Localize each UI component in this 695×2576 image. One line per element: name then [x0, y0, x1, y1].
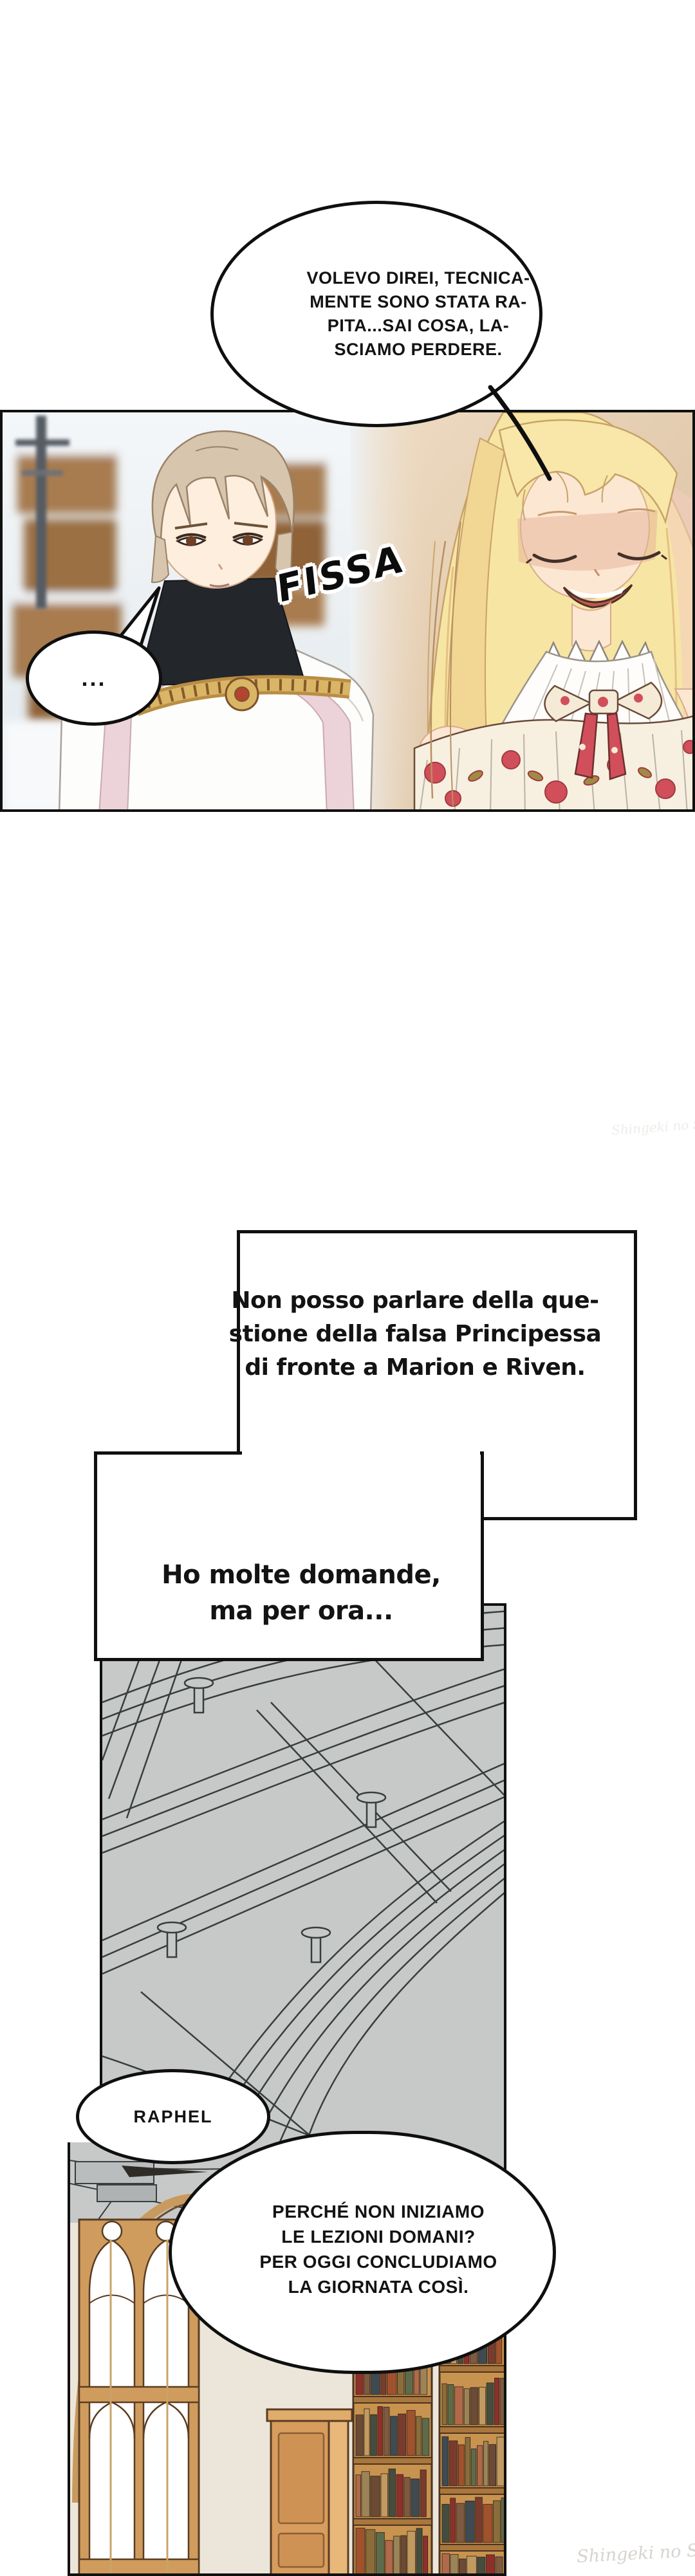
- caption-principessa-text: Non posso parlare della que- stione dell…: [222, 1284, 608, 1385]
- ellipsis-bubble: ...: [26, 630, 162, 726]
- raphel-text: RAPHEL: [133, 2107, 212, 2127]
- watermark-mid: Shingeki no Shoujo: [611, 1114, 695, 1138]
- speech-bubble-lezioni-text: PERCHÉ NON INIZIAMO LE LEZIONI DOMANI? P…: [198, 2199, 559, 2299]
- speech-bubble-intro-text: VOLEVO DIREI, TECNICA- MENTE SONO STATA …: [270, 266, 566, 362]
- speech-bubble-intro-tail: [483, 381, 560, 490]
- vault-capitals: [158, 1678, 385, 1962]
- watermark-bottom: Shingeki no Shoujo: [576, 2538, 695, 2567]
- ellipsis-text: ...: [81, 665, 106, 692]
- wardrobe: [267, 2409, 352, 2576]
- panel-vault-ceiling: [100, 1603, 506, 2142]
- caption-domande-text: Ho molte domande, ma per ora...: [121, 1557, 481, 1629]
- caption-box-union-patch: [242, 1449, 480, 1458]
- caption-box-domande: [94, 1451, 484, 1661]
- speech-bubble-raphel: RAPHEL: [76, 2069, 270, 2164]
- vault-ceiling-art: [102, 1606, 506, 2142]
- comic-page: FISSA VOLEVO DIREI, TECNICA- MENTE SONO …: [0, 0, 695, 2576]
